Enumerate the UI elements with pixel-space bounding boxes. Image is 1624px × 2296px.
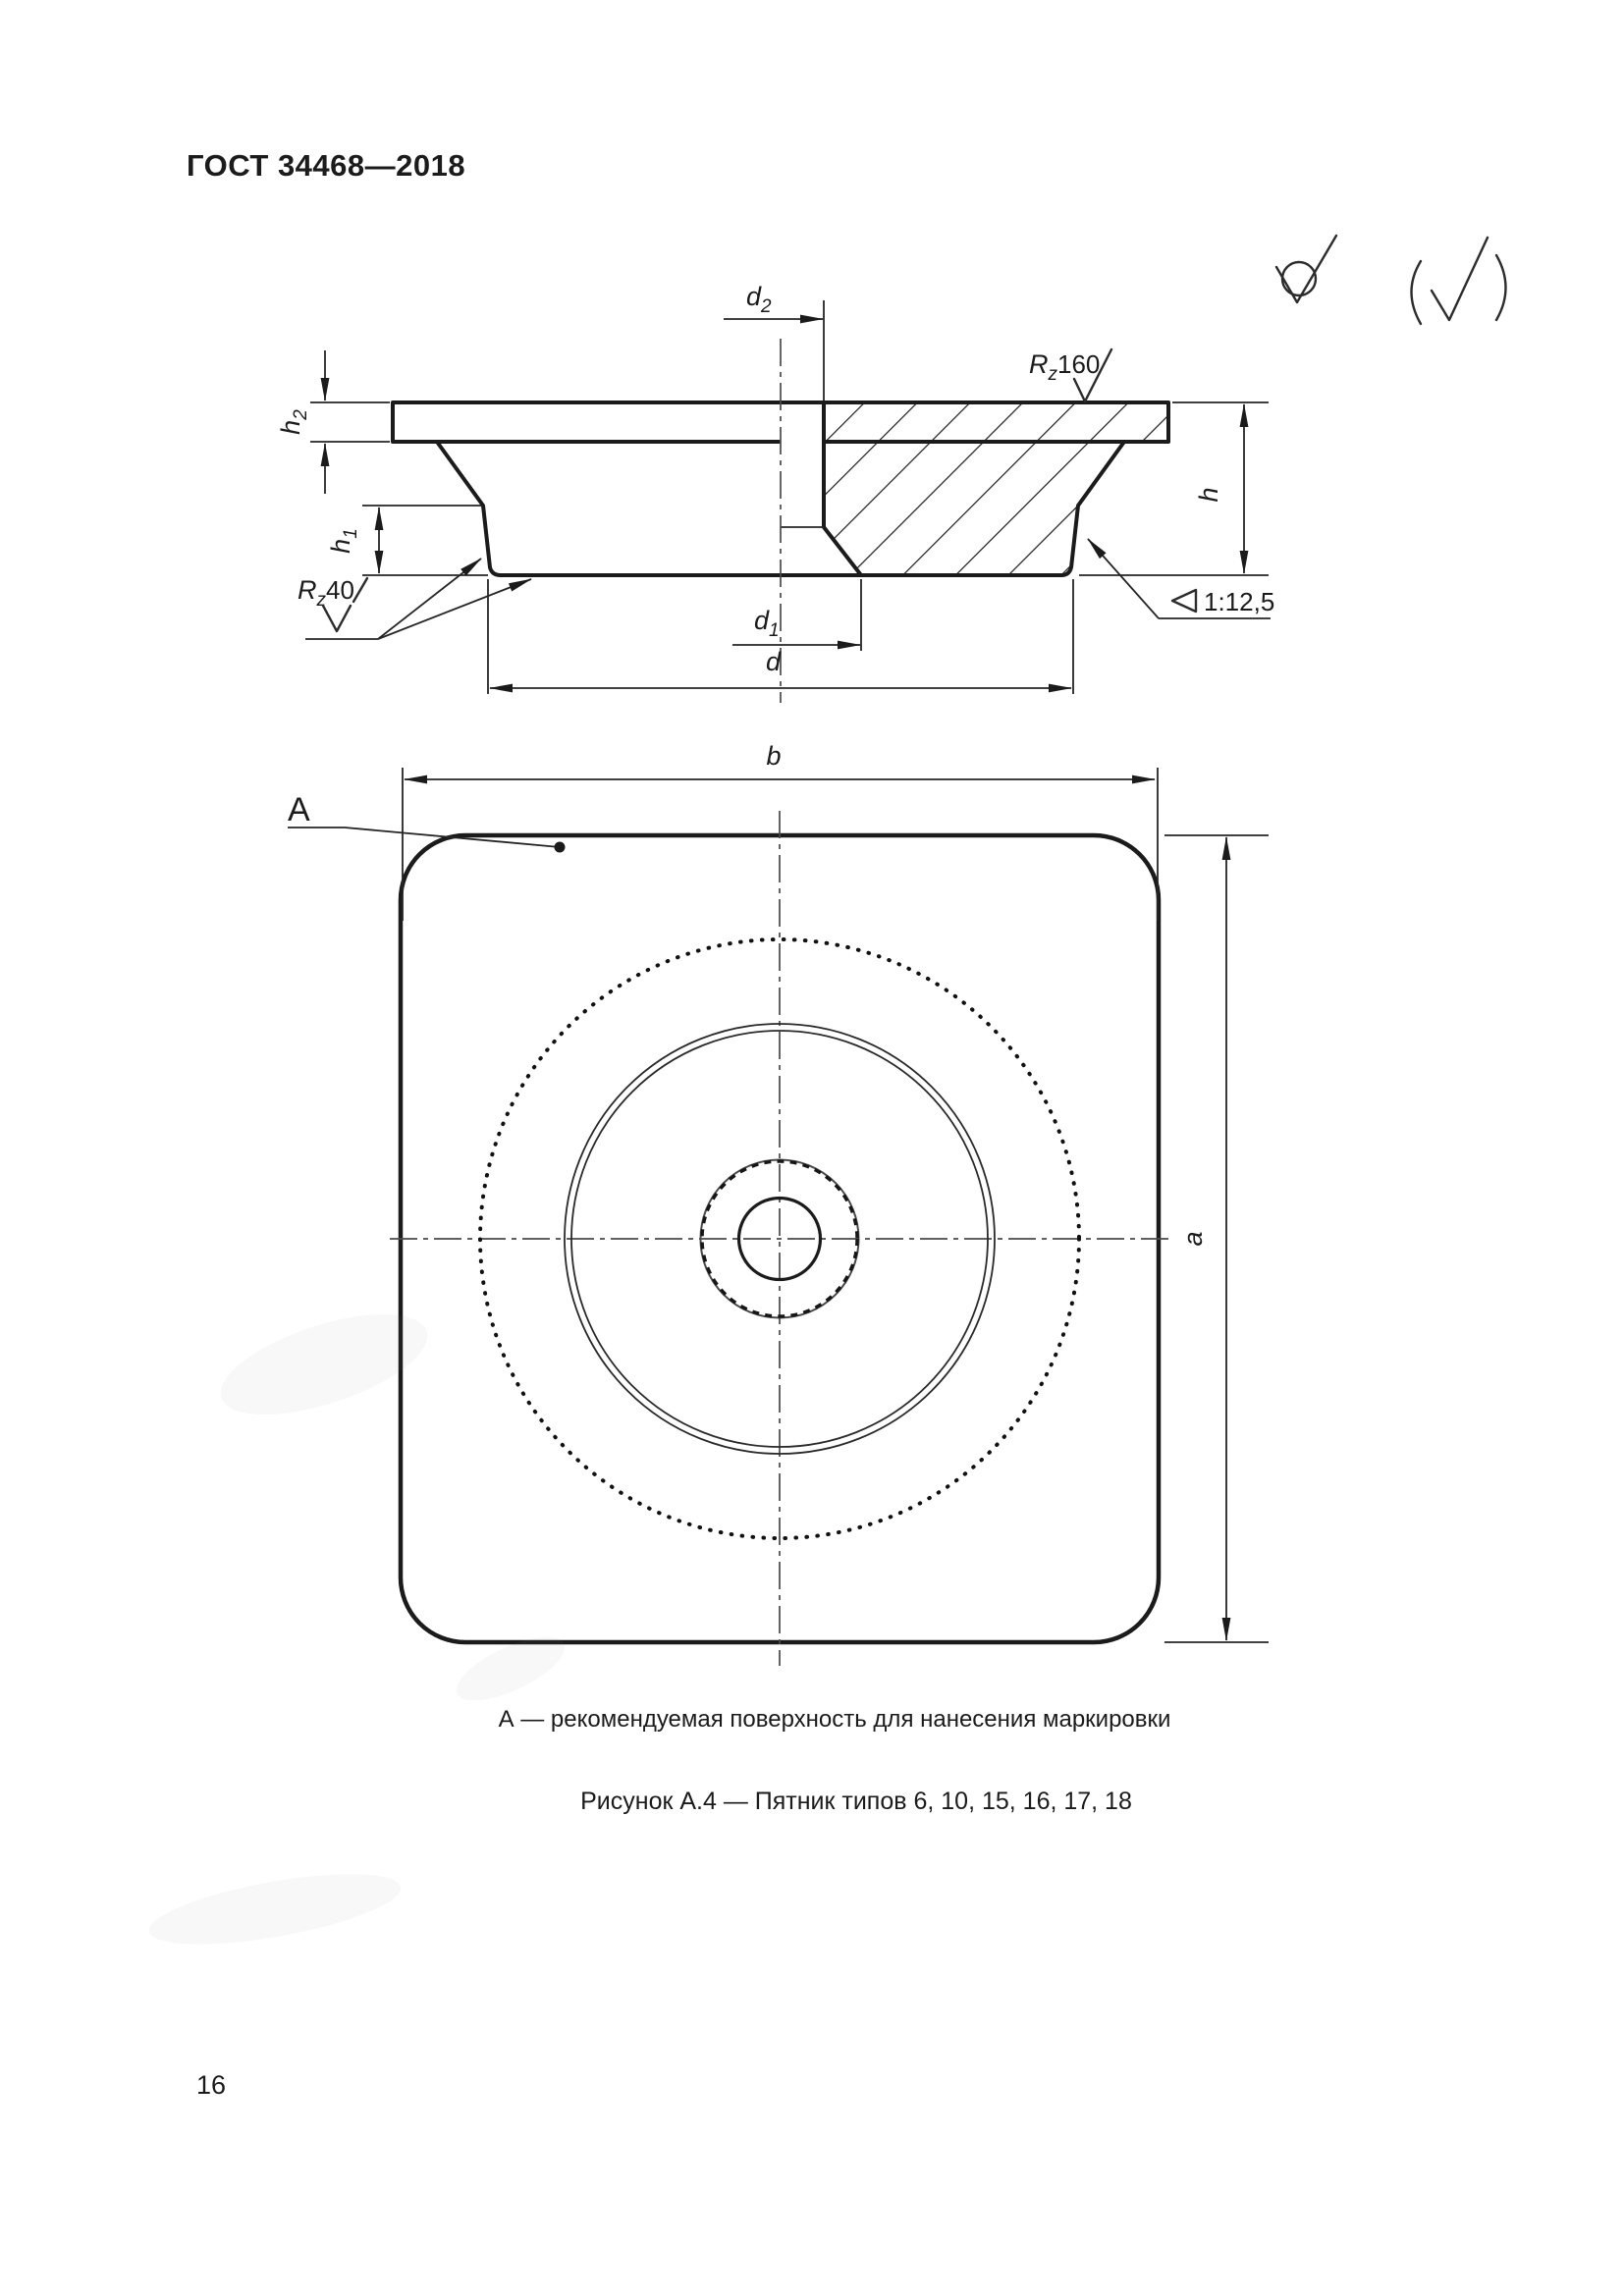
dim-a: a [1164, 835, 1269, 1642]
taper-triangle-icon [1172, 590, 1196, 612]
figure-caption: Рисунок А.4 — Пятник типов 6, 10, 15, 16… [580, 1788, 1132, 1815]
svg-text:a: a [1178, 1231, 1208, 1246]
svg-text:h: h [1194, 487, 1223, 502]
roughness-check-icon [323, 606, 351, 631]
roughness-leg-icon [353, 578, 367, 602]
taper-callout: 1:12,5 [1088, 539, 1274, 618]
roughness-rz160-callout: Rz160 [1029, 349, 1111, 401]
dim-h2: h2 [276, 350, 390, 494]
dim-d1: d1 [732, 579, 861, 651]
section-view: d2 Rz160 h 1:12,5 h2 [276, 282, 1274, 703]
page-header: ГОСТ 34468—2018 [187, 148, 465, 183]
roughness-check-circle-icon [1276, 236, 1336, 302]
svg-text:h1: h1 [326, 528, 361, 554]
svg-text:h2: h2 [276, 409, 311, 435]
surface-marker-callout: А [288, 791, 566, 853]
svg-text:b: b [766, 741, 781, 771]
plan-view: b a А [288, 741, 1269, 1666]
section-hatch-area [824, 402, 1168, 575]
paren-roughness-check-icon [1412, 238, 1506, 324]
roughness-rz40-callout: Rz40 [298, 559, 531, 639]
surface-marker-dot [555, 842, 566, 853]
dim-h1: h1 [326, 506, 488, 575]
page-number: 16 [196, 2070, 226, 2100]
document-page: ГОСТ 34468—2018 d2 Rz160 [0, 0, 1624, 2296]
svg-text:1:12,5: 1:12,5 [1204, 587, 1274, 616]
svg-text:d2: d2 [746, 282, 772, 317]
svg-text:Rz160: Rz160 [1029, 349, 1100, 385]
surface-note-caption: А — рекомендуемая поверхность для нанесе… [499, 1706, 1171, 1733]
scan-artifacts [144, 1294, 573, 1958]
dim-d2: d2 [724, 282, 824, 400]
svg-text:d1: d1 [754, 606, 780, 641]
svg-text:d: d [766, 647, 782, 676]
surface-marker-label: А [288, 791, 310, 828]
svg-text:Rz40: Rz40 [298, 575, 354, 611]
